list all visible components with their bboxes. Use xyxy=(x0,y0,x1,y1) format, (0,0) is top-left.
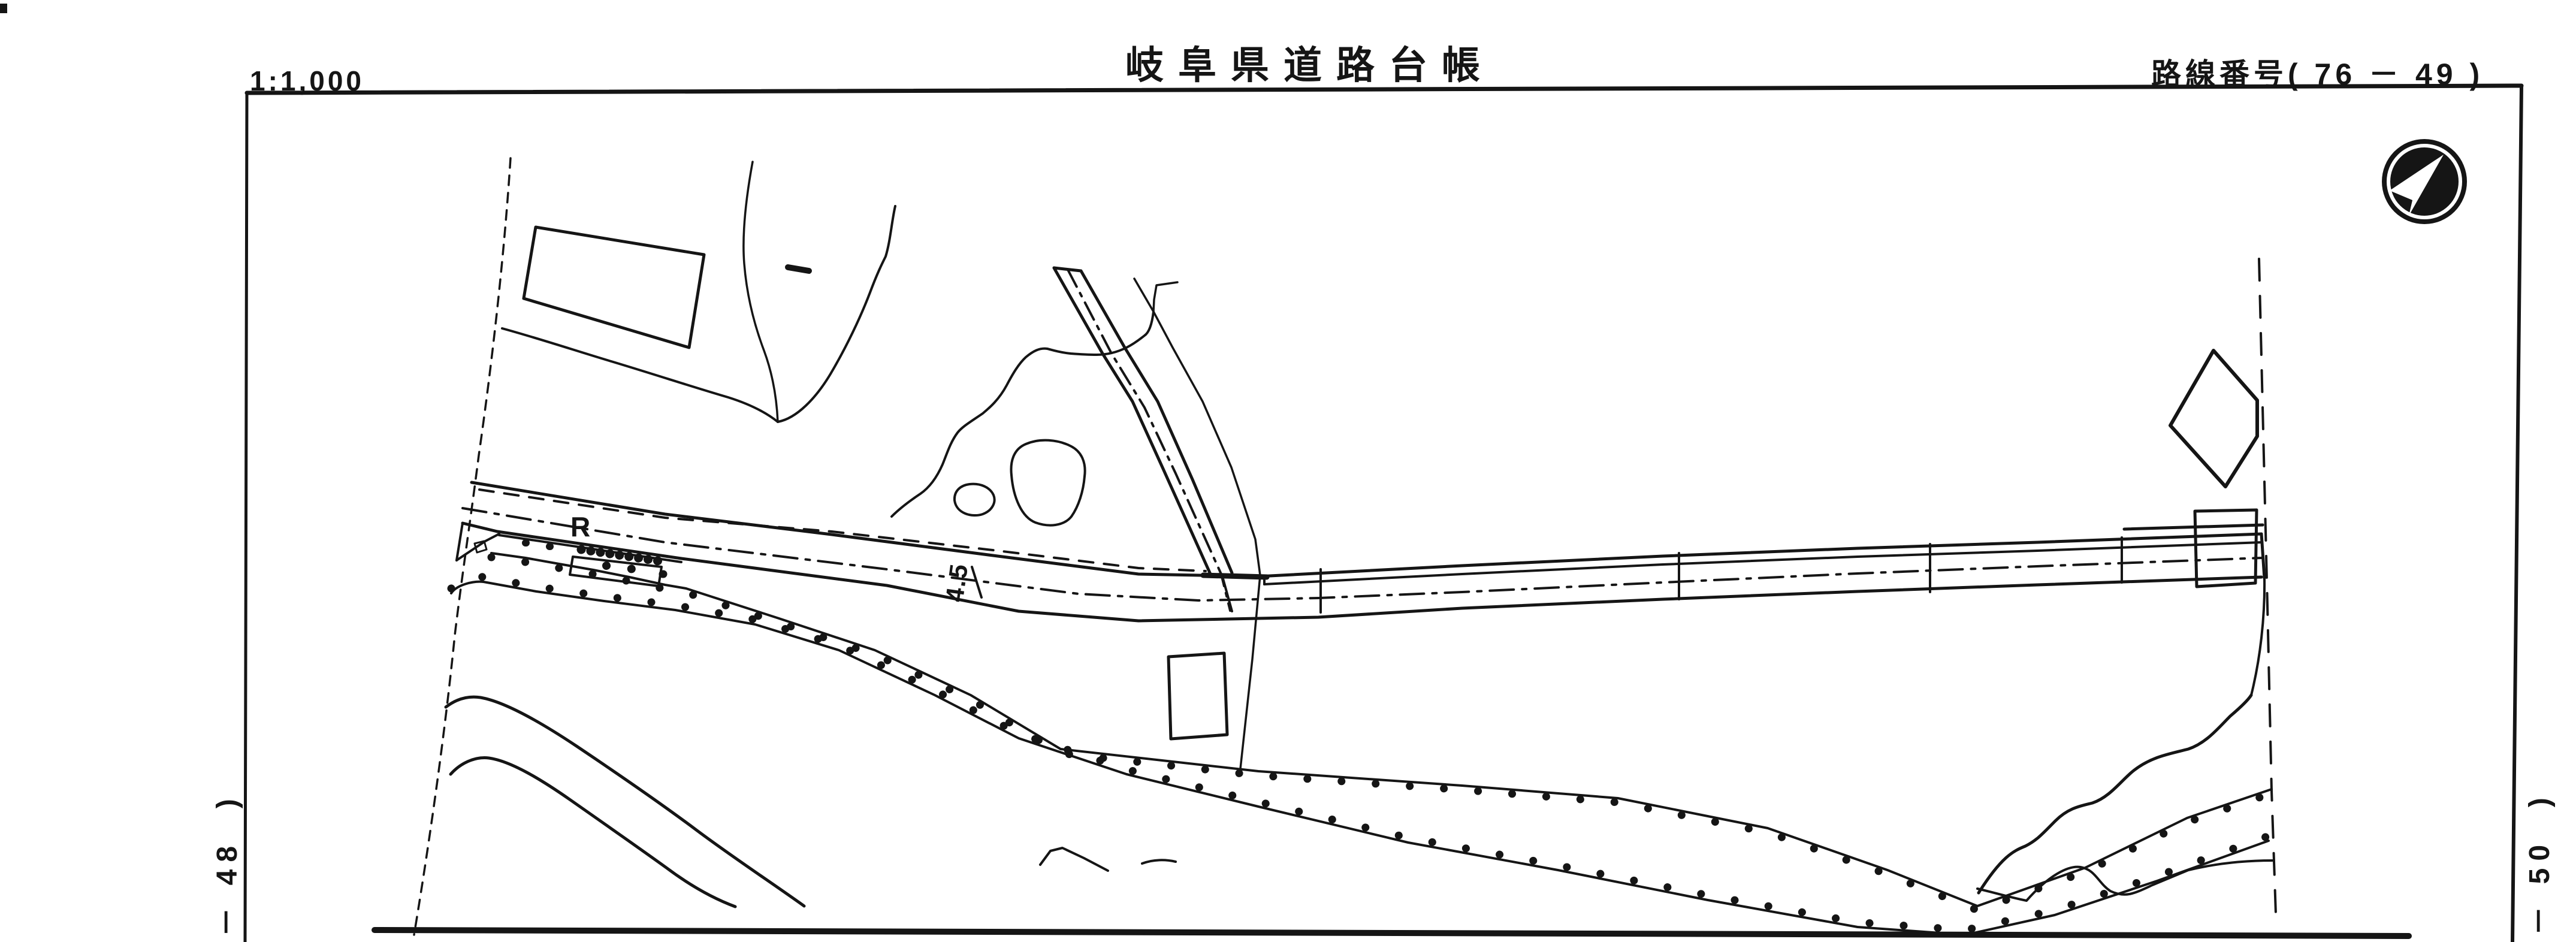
slope-arcs xyxy=(446,697,1176,907)
map-drawing xyxy=(0,0,2576,942)
river-bank-curves xyxy=(1977,695,2272,901)
road-width-label: 4.5 xyxy=(940,561,974,603)
adjacent-sheet-label-right: － 50 ) xyxy=(2515,790,2557,935)
branch-road xyxy=(1054,268,1232,611)
embankment-lines xyxy=(451,553,2272,935)
buildings xyxy=(475,227,2257,739)
main-road xyxy=(463,482,2264,695)
width-tick xyxy=(972,567,982,597)
parcel-boundary xyxy=(1134,279,1260,769)
building-mid xyxy=(1168,653,1227,739)
sheet-boundary-left xyxy=(414,158,511,935)
pond-contours xyxy=(892,312,1153,526)
building-right-square xyxy=(2195,510,2257,587)
building-upper-left xyxy=(524,227,704,348)
route-number-label: 路線番号( 76 － 49 ) xyxy=(2151,50,2484,93)
scan-artifact xyxy=(0,4,7,13)
sheet-boundary-right xyxy=(2259,259,2276,914)
adjacent-sheet-label-left: － 48 ) xyxy=(203,792,245,936)
scale-label: 1:1,000 xyxy=(250,65,364,97)
road-ledger-sheet: 1:1,000 岐阜県道路台帳 路線番号( 76 － 49 ) R 4.5 － … xyxy=(0,0,2576,942)
point-label-r: R xyxy=(570,511,590,543)
north-arrow-icon xyxy=(2382,139,2467,224)
page-title: 岐阜県道路台帳 xyxy=(1125,35,1494,90)
building-right-diamond xyxy=(2170,351,2257,487)
